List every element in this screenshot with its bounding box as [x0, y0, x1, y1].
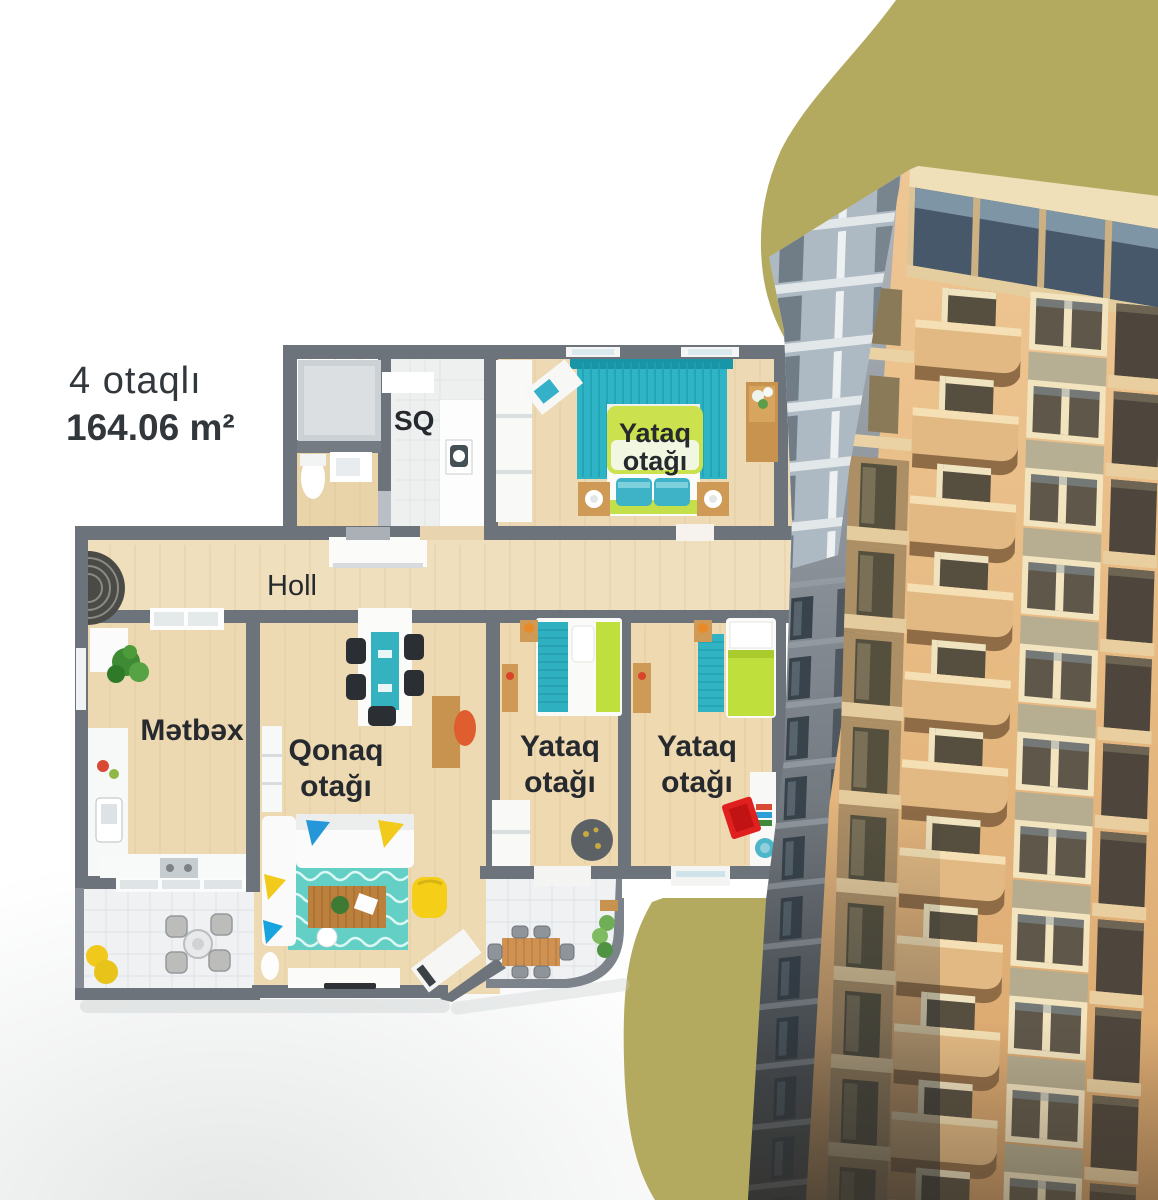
- svg-text:Yataq: Yataq: [619, 418, 691, 448]
- svg-text:Holl: Holl: [267, 570, 317, 602]
- svg-text:Yataq: Yataq: [520, 730, 600, 763]
- svg-text:otağı: otağı: [300, 770, 372, 803]
- svg-text:Qonaq: Qonaq: [289, 734, 384, 767]
- svg-text:Yataq: Yataq: [657, 730, 737, 763]
- svg-text:otağı: otağı: [524, 766, 596, 799]
- svg-text:otağı: otağı: [623, 446, 688, 476]
- svg-text:otağı: otağı: [661, 766, 733, 799]
- svg-text:164.06 m²: 164.06 m²: [66, 407, 235, 448]
- svg-text:4 otaqlı: 4 otaqlı: [69, 360, 202, 402]
- svg-text:Mətbəx: Mətbəx: [140, 714, 244, 747]
- svg-text:SQ: SQ: [394, 405, 434, 436]
